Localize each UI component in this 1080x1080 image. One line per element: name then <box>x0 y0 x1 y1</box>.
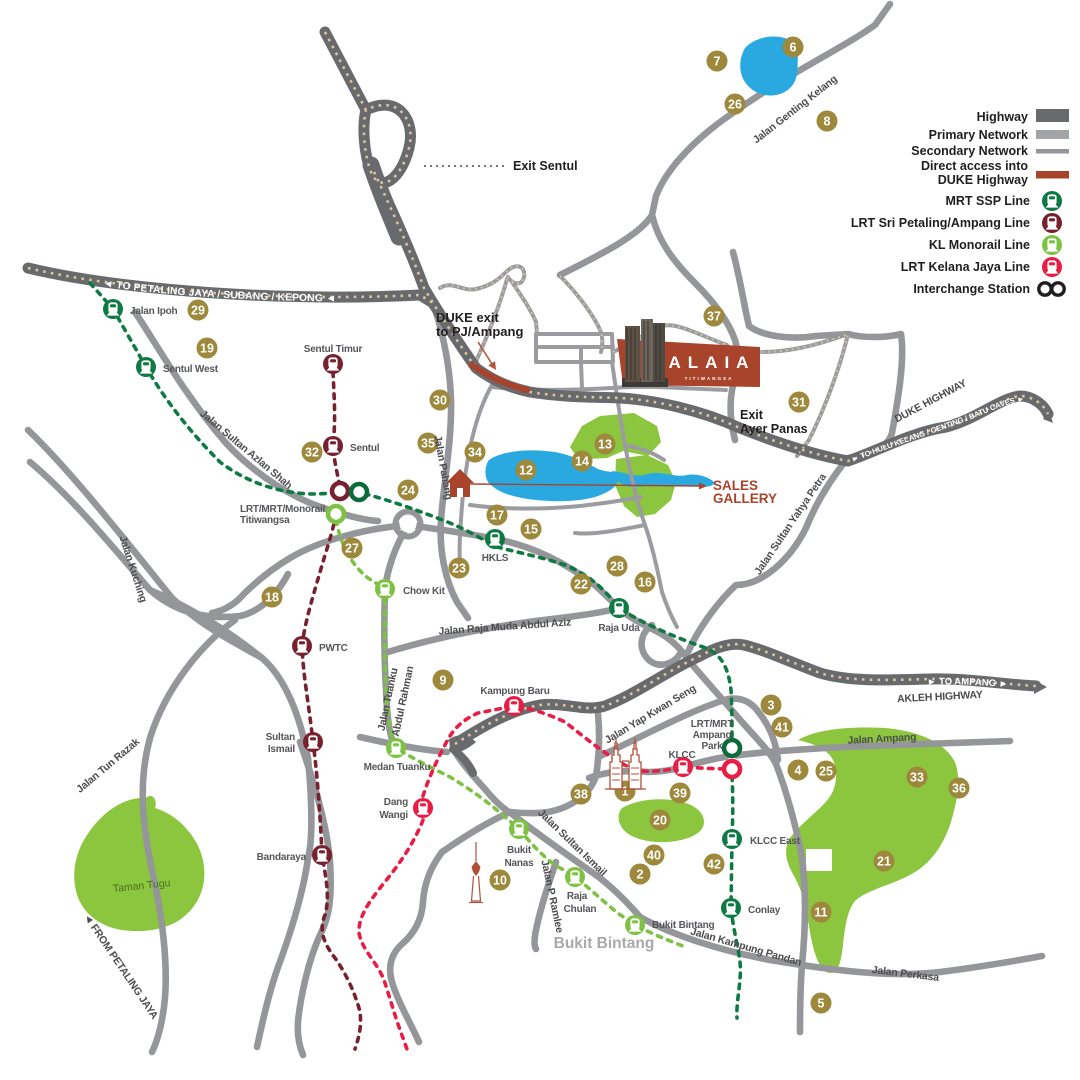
svg-text:MRT SSP Line: MRT SSP Line <box>945 194 1030 208</box>
svg-text:23: 23 <box>452 562 466 576</box>
svg-text:Raja: Raja <box>567 891 588 902</box>
svg-text:LRT/MRT/Monorail: LRT/MRT/Monorail <box>240 504 326 515</box>
svg-text:Wangi: Wangi <box>379 810 408 821</box>
svg-text:Bandaraya: Bandaraya <box>257 852 307 863</box>
svg-text:26: 26 <box>728 98 742 112</box>
svg-text:34: 34 <box>468 446 482 460</box>
svg-text:Ismail: Ismail <box>268 744 296 755</box>
svg-text:Chulan: Chulan <box>564 904 597 915</box>
svg-text:Dang: Dang <box>384 797 408 808</box>
svg-text:5: 5 <box>818 997 825 1011</box>
svg-text:33: 33 <box>910 771 924 785</box>
svg-text:21: 21 <box>877 855 891 869</box>
svg-text:38: 38 <box>574 788 588 802</box>
svg-text:14: 14 <box>575 455 589 469</box>
svg-text:42: 42 <box>707 858 721 872</box>
svg-text:18: 18 <box>265 591 279 605</box>
svg-text:32: 32 <box>305 446 319 460</box>
svg-text:Primary Network: Primary Network <box>929 128 1028 142</box>
svg-text:36: 36 <box>952 782 966 796</box>
svg-text:8: 8 <box>824 115 831 129</box>
svg-text:6: 6 <box>790 41 797 55</box>
svg-text:Sentul West: Sentul West <box>163 364 219 375</box>
svg-text:KLCC: KLCC <box>669 750 696 761</box>
svg-text:24: 24 <box>401 484 415 498</box>
svg-text:Secondary Network: Secondary Network <box>911 144 1028 158</box>
svg-text:4: 4 <box>795 764 802 778</box>
svg-text:28: 28 <box>610 560 624 574</box>
svg-text:Exit: Exit <box>740 408 764 422</box>
svg-text:16: 16 <box>638 576 652 590</box>
svg-text:PWTC: PWTC <box>319 643 348 654</box>
svg-text:Bukit: Bukit <box>507 845 532 856</box>
svg-text:HKLS: HKLS <box>482 553 509 564</box>
svg-text:20: 20 <box>653 814 667 828</box>
svg-text:KL Monorail Line: KL Monorail Line <box>929 238 1030 252</box>
svg-text:3: 3 <box>768 699 775 713</box>
svg-text:LRT Sri Petaling/Ampang Line: LRT Sri Petaling/Ampang Line <box>851 216 1030 230</box>
svg-text:KLCC East: KLCC East <box>750 836 801 847</box>
svg-text:ALAIA: ALAIA <box>669 353 756 372</box>
svg-text:Ayer Panas: Ayer Panas <box>740 422 808 436</box>
svg-text:39: 39 <box>673 787 687 801</box>
svg-text:Chow Kit: Chow Kit <box>403 586 446 597</box>
svg-text:40: 40 <box>647 849 661 863</box>
svg-text:Sentul: Sentul <box>350 443 380 454</box>
svg-text:11: 11 <box>814 906 827 920</box>
svg-text:27: 27 <box>345 542 359 556</box>
svg-text:22: 22 <box>574 578 588 592</box>
svg-text:Exit Sentul: Exit Sentul <box>513 159 578 173</box>
svg-text:LRT Kelana Jaya Line: LRT Kelana Jaya Line <box>901 260 1030 274</box>
svg-text:LRT/MRT: LRT/MRT <box>691 719 734 730</box>
svg-text:13: 13 <box>598 438 612 452</box>
svg-text:12: 12 <box>519 464 533 478</box>
svg-text:Ampang: Ampang <box>693 730 732 741</box>
svg-text:Medan Tuanku: Medan Tuanku <box>364 762 431 773</box>
svg-text:9: 9 <box>440 674 447 688</box>
svg-text:Raja Uda: Raja Uda <box>598 623 640 634</box>
svg-text:DUKE exit: DUKE exit <box>436 310 500 325</box>
svg-text:Conlay: Conlay <box>748 905 781 916</box>
svg-text:15: 15 <box>524 523 538 537</box>
svg-text:to PJ/Ampang: to PJ/Ampang <box>436 324 523 339</box>
svg-text:25: 25 <box>819 765 833 779</box>
svg-text:2: 2 <box>637 868 644 882</box>
svg-text:Park: Park <box>702 741 724 752</box>
svg-text:Jalan Ipoh: Jalan Ipoh <box>130 306 178 317</box>
svg-text:DUKE Highway: DUKE Highway <box>938 173 1028 187</box>
svg-text:31: 31 <box>792 396 806 410</box>
svg-text:Nanas: Nanas <box>504 858 534 869</box>
svg-text:29: 29 <box>191 304 205 318</box>
svg-text:Sentul Timur: Sentul Timur <box>304 344 363 355</box>
svg-text:10: 10 <box>493 874 507 888</box>
svg-text:Highway: Highway <box>977 110 1028 124</box>
svg-text:GALLERY: GALLERY <box>713 491 777 506</box>
svg-text:Interchange Station: Interchange Station <box>913 282 1030 296</box>
svg-text:7: 7 <box>714 55 721 69</box>
svg-text:Bukit Bintang: Bukit Bintang <box>554 935 655 952</box>
svg-text:41: 41 <box>775 721 789 735</box>
svg-text:Titiwangsa: Titiwangsa <box>240 515 290 526</box>
svg-text:Sultan: Sultan <box>266 732 295 743</box>
svg-text:Direct access into: Direct access into <box>921 159 1028 173</box>
svg-text:TITIWANGSA: TITIWANGSA <box>685 376 734 381</box>
svg-text:30: 30 <box>433 394 447 408</box>
svg-text:19: 19 <box>200 342 214 356</box>
svg-text:17: 17 <box>490 509 504 523</box>
svg-text:Kampung Baru: Kampung Baru <box>480 686 549 697</box>
svg-text:37: 37 <box>707 310 721 324</box>
